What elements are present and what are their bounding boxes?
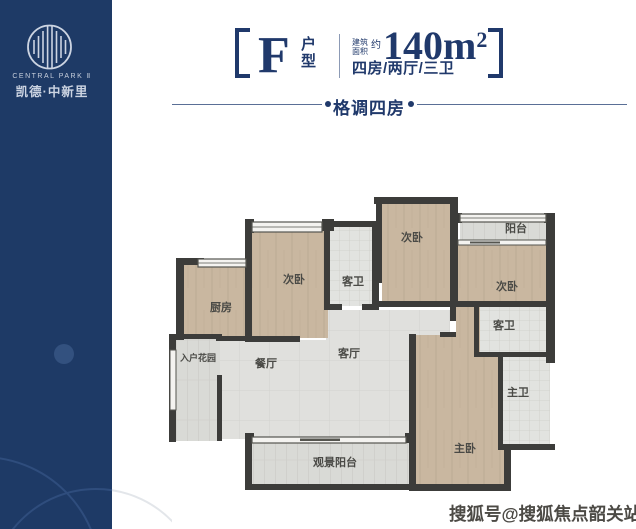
svg-text:客卫: 客卫 [492, 318, 515, 332]
svg-text:观景阳台: 观景阳台 [313, 455, 357, 469]
svg-text:客厅: 客厅 [337, 346, 360, 360]
svg-text:入户花园: 入户花园 [179, 352, 216, 363]
svg-text:客卫: 客卫 [341, 274, 364, 288]
svg-text:餐厅: 餐厅 [254, 356, 277, 370]
svg-text:厨房: 厨房 [210, 300, 232, 314]
svg-text:主卧: 主卧 [454, 441, 476, 455]
svg-text:次卧: 次卧 [401, 230, 423, 244]
svg-text:阳台: 阳台 [505, 221, 527, 235]
svg-text:次卧: 次卧 [283, 272, 305, 286]
svg-text:主卫: 主卫 [507, 385, 529, 399]
svg-text:次卧: 次卧 [496, 279, 518, 293]
